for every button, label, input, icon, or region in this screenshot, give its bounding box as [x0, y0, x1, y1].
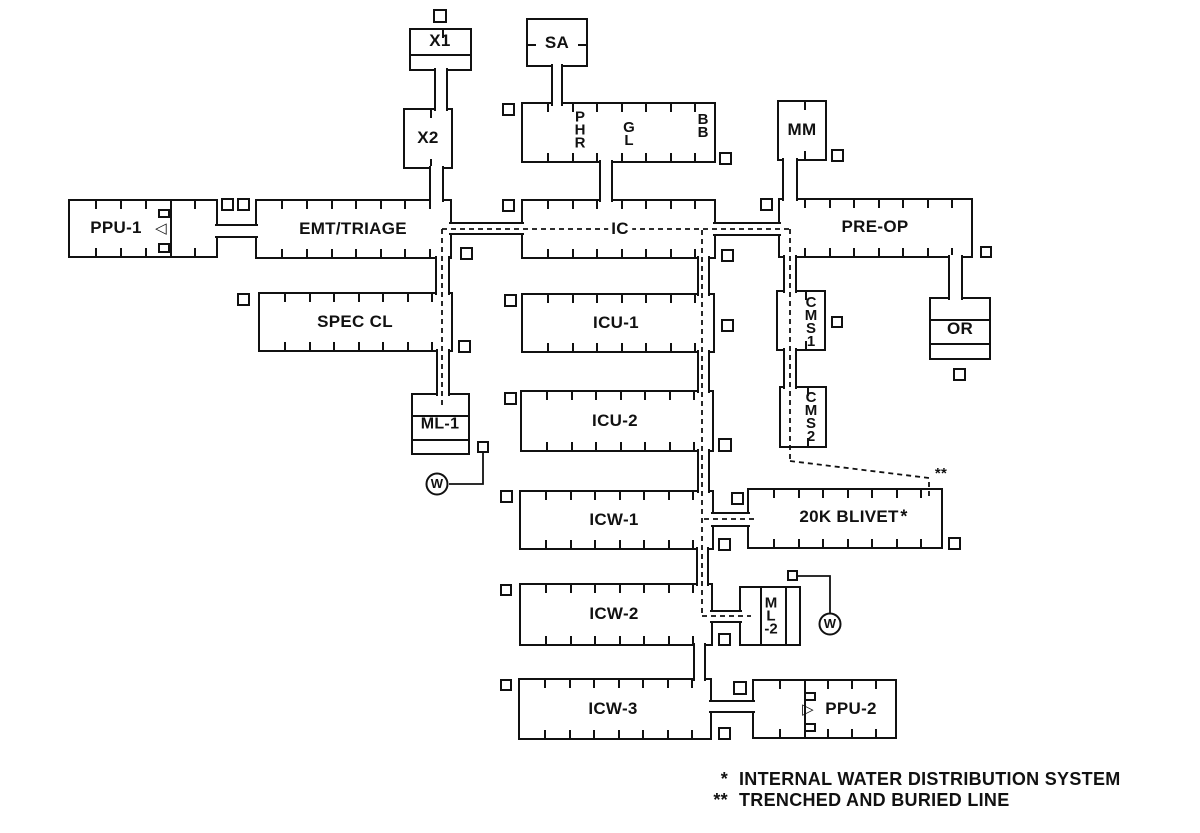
label-ppu-1: PPU-1: [90, 219, 142, 237]
tent-section-tick: [594, 636, 596, 644]
vestibule-square: [500, 679, 512, 691]
tent-section-tick: [871, 539, 873, 547]
tent-section-tick: [920, 539, 922, 547]
tent-section-tick: [194, 201, 196, 209]
corridor: [436, 349, 450, 396]
vestibule-square: [719, 152, 732, 165]
tent-section-tick: [920, 490, 922, 498]
tent-section-tick: [779, 729, 781, 737]
tent-section-tick: [594, 492, 596, 500]
legend-symbol-single-star: *: [701, 769, 728, 790]
generator-tab: [158, 243, 170, 253]
tent-section-tick: [596, 153, 598, 161]
tent-section-tick: [822, 539, 824, 547]
tent-section-tick: [670, 153, 672, 161]
label-mm: MM: [788, 121, 817, 139]
tent-section-tick: [645, 249, 647, 257]
corridor: [215, 224, 258, 238]
tent-section-tick: [643, 585, 645, 593]
tent-section-tick: [546, 392, 548, 400]
tent-section-tick: [853, 248, 855, 256]
tent-section-tick: [544, 680, 546, 688]
tent-section-tick: [822, 490, 824, 498]
vestibule-square: [831, 316, 843, 328]
label-x1: X1: [429, 32, 450, 50]
marker-double-star: **: [935, 466, 947, 482]
vestibule-square: [733, 681, 747, 695]
tent-section-tick: [569, 730, 571, 738]
tent-section-tick: [667, 680, 669, 688]
tent-section-tick: [621, 249, 623, 257]
tent-section-tick: [643, 636, 645, 644]
tent-section-tick: [644, 442, 646, 450]
tent-section-tick: [281, 201, 283, 209]
vestibule-square: [502, 103, 515, 116]
vestibule-square: [980, 246, 992, 258]
vestibule-square: [731, 492, 744, 505]
tent-section-tick: [595, 392, 597, 400]
corridor: [697, 449, 710, 493]
tent-section-tick: [596, 104, 598, 112]
legend-row: * INTERNAL WATER DISTRIBUTION SYSTEM: [701, 769, 1121, 790]
tent-section-tick: [547, 249, 549, 257]
vestibule-square: [460, 247, 473, 260]
tent-section-tick: [404, 249, 406, 257]
vestibule-square: [787, 570, 798, 581]
unit-cms1: [776, 290, 826, 351]
vestibule-square: [721, 319, 734, 332]
unit-divider: [413, 439, 468, 441]
tent-section-tick: [309, 294, 311, 302]
tent-section-tick: [545, 492, 547, 500]
unit-divider: [411, 54, 470, 56]
tent-section-tick: [951, 200, 953, 208]
tent-section-tick: [642, 730, 644, 738]
label-gl: G L: [623, 121, 635, 147]
tent-section-tick: [692, 492, 694, 500]
tent-section-tick: [621, 153, 623, 161]
tent-section-tick: [779, 681, 781, 689]
tent-section-tick: [621, 201, 623, 209]
tent-section-tick: [902, 200, 904, 208]
tent-section-tick: [691, 730, 693, 738]
tent-section-tick: [331, 201, 333, 209]
tent-section-tick: [804, 151, 806, 159]
tent-section-tick: [355, 249, 357, 257]
tent-section-tick: [694, 343, 696, 351]
corridor: [449, 222, 524, 235]
tent-section-tick: [668, 540, 670, 548]
tent-section-tick: [847, 539, 849, 547]
corridor: [697, 256, 710, 296]
tent-section-tick: [667, 730, 669, 738]
tent-section-tick: [670, 343, 672, 351]
tent-section-tick: [547, 201, 549, 209]
vestibule-square: [718, 438, 732, 452]
tent-section-tick: [827, 681, 829, 689]
label-pre-op: PRE-OP: [842, 218, 909, 236]
unit-divider: [931, 343, 989, 345]
tent-section-tick: [429, 201, 431, 209]
vestibule-square: [718, 538, 731, 551]
corridor: [435, 256, 450, 295]
tent-section-tick: [572, 153, 574, 161]
label-cms1: C M S 1: [805, 296, 818, 348]
tent-section-tick: [547, 104, 549, 112]
water-hookup-line: [449, 453, 483, 484]
tent-section-tick: [645, 343, 647, 351]
tent-section-tick: [619, 636, 621, 644]
corridor: [782, 158, 798, 201]
corridor: [551, 64, 563, 106]
tent-section-tick: [621, 295, 623, 303]
vestibule-square: [721, 249, 734, 262]
tent-section-tick: [309, 342, 311, 350]
tent-section-tick: [594, 540, 596, 548]
tent-section-tick: [594, 585, 596, 593]
tent-section-tick: [596, 295, 598, 303]
vestibule-square: [718, 633, 731, 646]
tent-section-tick: [331, 249, 333, 257]
tent-section-tick: [431, 294, 433, 302]
tent-section-tick: [306, 249, 308, 257]
vestibule-square: [500, 584, 512, 596]
label-ppu-2: PPU-2: [825, 700, 877, 718]
tent-section-tick: [798, 539, 800, 547]
tent-section-tick: [804, 200, 806, 208]
tent-section-tick: [284, 342, 286, 350]
tent-section-tick: [571, 442, 573, 450]
tent-section-tick: [281, 249, 283, 257]
tent-section-tick: [773, 490, 775, 498]
tent-section-tick: [545, 636, 547, 644]
tent-section-tick: [407, 342, 409, 350]
marker-single-star: *: [900, 508, 907, 527]
tent-section-tick: [194, 248, 196, 256]
tent-section-tick: [668, 492, 670, 500]
tent-section-tick: [896, 539, 898, 547]
corridor: [693, 643, 706, 681]
tent-section-tick: [544, 730, 546, 738]
tent-section-tick: [333, 294, 335, 302]
legend: * INTERNAL WATER DISTRIBUTION SYSTEM ** …: [701, 769, 1121, 811]
label-emt-triage: EMT/TRIAGE: [299, 220, 407, 238]
tent-section-tick: [95, 201, 97, 209]
vestibule-square: [948, 537, 961, 550]
tent-section-tick: [773, 539, 775, 547]
tent-section-tick: [669, 392, 671, 400]
tent-section-tick: [593, 730, 595, 738]
unit-cms2: [779, 386, 827, 448]
tent-section-tick: [429, 249, 431, 257]
tent-section-tick: [570, 585, 572, 593]
tent-section-tick: [668, 636, 670, 644]
tent-section-tick: [804, 248, 806, 256]
tent-section-tick: [669, 442, 671, 450]
unit-divider: [170, 201, 172, 256]
label-x2: X2: [417, 129, 438, 147]
label-icu-1: ICU-1: [593, 314, 639, 332]
tent-section-tick: [927, 200, 929, 208]
tent-section-tick: [851, 681, 853, 689]
label-icu-2: ICU-2: [592, 412, 638, 430]
tent-section-tick: [621, 104, 623, 112]
unit-phr-gl-bb: [521, 102, 716, 163]
tent-section-tick: [431, 342, 433, 350]
tent-section-tick: [404, 201, 406, 209]
tent-section-tick: [927, 248, 929, 256]
tent-section-tick: [380, 249, 382, 257]
tent-section-tick: [693, 442, 695, 450]
tent-section-tick: [644, 392, 646, 400]
tent-section-tick: [896, 490, 898, 498]
tent-section-tick: [670, 249, 672, 257]
legend-text-water-system: INTERNAL WATER DISTRIBUTION SYSTEM: [739, 769, 1121, 790]
corridor: [697, 350, 710, 393]
label-icw-3: ICW-3: [588, 700, 637, 718]
tent-section-tick: [382, 294, 384, 302]
tent-section-tick: [691, 680, 693, 688]
water-point-letter: W: [431, 477, 444, 491]
vestibule-square: [953, 368, 966, 381]
tent-section-tick: [670, 104, 672, 112]
tent-section-tick: [694, 295, 696, 303]
corridor: [429, 166, 444, 202]
generator-symbol-left: ◁: [155, 221, 167, 237]
tent-section-tick: [851, 729, 853, 737]
generator-tab: [804, 692, 816, 701]
tent-section-tick: [572, 249, 574, 257]
tent-section-tick: [547, 343, 549, 351]
tent-section-tick: [569, 680, 571, 688]
tent-section-tick: [95, 248, 97, 256]
label-icw-1: ICW-1: [589, 511, 638, 529]
unit-divider: [760, 588, 762, 644]
tent-section-tick: [358, 294, 360, 302]
field-hospital-layout-diagram: * INTERNAL WATER DISTRIBUTION SYSTEM ** …: [0, 0, 1200, 833]
tent-section-tick: [546, 442, 548, 450]
legend-symbol-double-star: **: [701, 790, 728, 811]
tent-section-tick: [694, 249, 696, 257]
tent-section-tick: [694, 201, 696, 209]
tent-section-tick: [407, 294, 409, 302]
tent-section-tick: [572, 343, 574, 351]
tent-section-tick: [570, 636, 572, 644]
legend-text-buried-line: TRENCHED AND BURIED LINE: [739, 790, 1010, 811]
tent-section-tick: [618, 730, 620, 738]
tent-section-tick: [145, 201, 147, 209]
tent-section-tick: [528, 44, 536, 46]
label-ic: IC: [608, 220, 632, 238]
tent-section-tick: [620, 392, 622, 400]
tent-section-tick: [145, 248, 147, 256]
tent-section-tick: [382, 342, 384, 350]
vestibule-square: [718, 727, 731, 740]
tent-section-tick: [645, 295, 647, 303]
tent-section-tick: [545, 540, 547, 548]
vestibule-square: [504, 294, 517, 307]
tent-section-tick: [120, 201, 122, 209]
corridor: [783, 255, 797, 293]
water-point-letter: W: [824, 617, 837, 631]
tent-section-tick: [875, 681, 877, 689]
tent-section-tick: [570, 540, 572, 548]
label-sa: SA: [545, 34, 569, 52]
tent-section-tick: [120, 248, 122, 256]
tent-section-tick: [620, 442, 622, 450]
tent-section-tick: [593, 680, 595, 688]
tent-section-tick: [355, 201, 357, 209]
tent-section-tick: [694, 104, 696, 112]
label-ml-1: ML-1: [421, 417, 460, 434]
tent-section-tick: [570, 492, 572, 500]
tent-section-tick: [643, 540, 645, 548]
tent-section-tick: [670, 295, 672, 303]
generator-tab: [158, 209, 170, 218]
tent-section-tick: [804, 102, 806, 110]
tent-section-tick: [619, 540, 621, 548]
vestibule-square: [760, 198, 773, 211]
tent-section-tick: [847, 490, 849, 498]
tent-section-tick: [571, 392, 573, 400]
label-ml-2: M L -2: [764, 597, 777, 636]
tent-section-tick: [692, 540, 694, 548]
tent-section-tick: [798, 490, 800, 498]
tent-section-tick: [619, 585, 621, 593]
generator-tab: [804, 723, 816, 732]
tent-section-tick: [596, 249, 598, 257]
vestibule-square: [500, 490, 513, 503]
tent-section-tick: [578, 44, 586, 46]
vestibule-square: [221, 198, 234, 211]
tent-section-tick: [306, 201, 308, 209]
corridor: [711, 512, 750, 527]
tent-section-tick: [545, 585, 547, 593]
tent-section-tick: [430, 110, 432, 118]
corridor: [599, 160, 613, 202]
vestibule-square: [237, 198, 250, 211]
corridor: [948, 255, 963, 300]
vestibule-square: [477, 441, 489, 453]
tent-section-tick: [692, 585, 694, 593]
label-spec-cl: SPEC CL: [317, 313, 393, 331]
generator-symbol-right: ▷: [802, 702, 814, 718]
tent-section-tick: [645, 153, 647, 161]
corridor: [783, 348, 797, 389]
tent-section-tick: [358, 342, 360, 350]
tent-section-tick: [853, 200, 855, 208]
tent-section-tick: [619, 492, 621, 500]
legend-row: ** TRENCHED AND BURIED LINE: [701, 790, 1121, 811]
tent-section-tick: [621, 343, 623, 351]
label-phr: P H R: [575, 111, 586, 150]
tent-section-tick: [668, 585, 670, 593]
tent-section-tick: [645, 201, 647, 209]
tent-section-tick: [902, 248, 904, 256]
tent-section-tick: [878, 248, 880, 256]
tent-section-tick: [871, 490, 873, 498]
vestibule-square: [502, 199, 515, 212]
vestibule-square: [504, 392, 517, 405]
tent-section-tick: [645, 104, 647, 112]
vestibule-square: [237, 293, 250, 306]
tent-section-tick: [643, 492, 645, 500]
tent-section-tick: [875, 729, 877, 737]
corridor: [434, 68, 448, 111]
unit-divider: [785, 588, 787, 644]
tent-section-tick: [547, 153, 549, 161]
tent-section-tick: [333, 342, 335, 350]
tent-section-tick: [572, 201, 574, 209]
tent-section-tick: [618, 680, 620, 688]
tent-section-tick: [829, 248, 831, 256]
tent-section-tick: [670, 201, 672, 209]
tent-section-tick: [642, 680, 644, 688]
water-hookup-line: [798, 576, 830, 613]
tent-section-tick: [380, 201, 382, 209]
tent-section-tick: [284, 294, 286, 302]
tent-section-tick: [547, 295, 549, 303]
corridor: [713, 222, 781, 236]
tent-section-tick: [827, 729, 829, 737]
corridor: [710, 610, 742, 623]
tent-section-tick: [595, 442, 597, 450]
tent-section-tick: [596, 201, 598, 209]
tent-section-tick: [829, 200, 831, 208]
tent-section-tick: [596, 343, 598, 351]
tent-section-tick: [878, 200, 880, 208]
label-or: OR: [947, 320, 973, 338]
vestibule-square: [433, 9, 447, 23]
corridor: [709, 700, 755, 713]
label-cms2: C M S 2: [805, 391, 818, 443]
tent-section-tick: [694, 153, 696, 161]
label-bb: B B: [698, 113, 709, 139]
vestibule-square: [831, 149, 844, 162]
tent-section-tick: [693, 392, 695, 400]
tent-section-tick: [572, 295, 574, 303]
label-20k-blivet: 20K BLIVET: [799, 508, 898, 526]
corridor: [696, 547, 709, 586]
label-icw-2: ICW-2: [589, 605, 638, 623]
vestibule-square: [458, 340, 471, 353]
